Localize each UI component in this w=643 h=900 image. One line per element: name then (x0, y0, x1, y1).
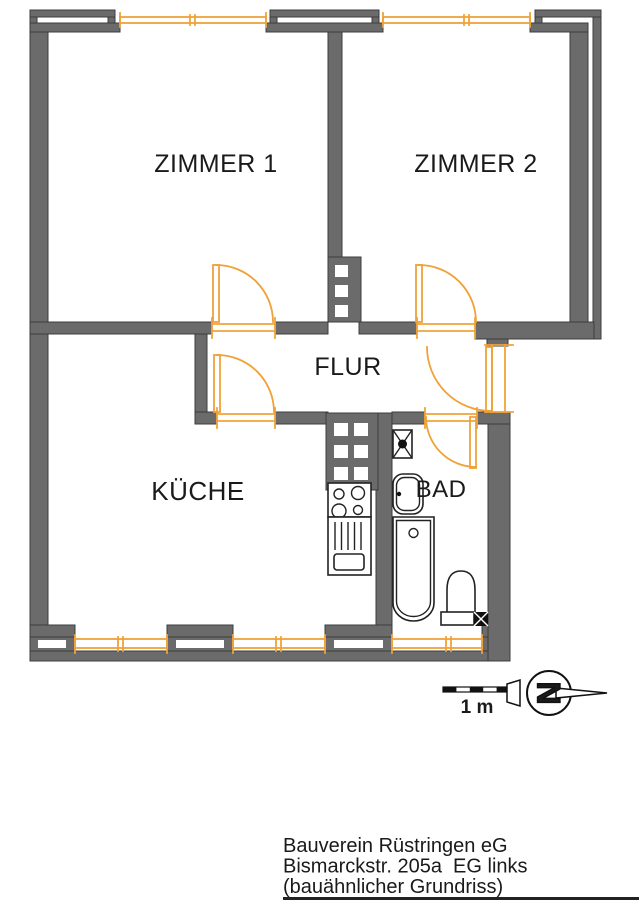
kitchen-sink (328, 517, 371, 575)
room-label-bad: BAD (416, 476, 467, 503)
window-zimmer1-top (120, 13, 266, 27)
window-kueche-left (75, 635, 167, 653)
caption: Bauverein Rüstringen eG Bismarckstr. 205… (283, 835, 528, 898)
drain-box (474, 612, 488, 626)
scale-label: 1 m (461, 697, 494, 718)
door-kueche (214, 355, 275, 428)
north-letter: N (531, 681, 567, 704)
shaft-kitchen (326, 413, 378, 490)
caption-line-3: (bauähnlicher Grundriss) (283, 876, 503, 898)
caption-line-1: Bauverein Rüstringen eG (283, 835, 508, 857)
door-zimmer2 (416, 265, 476, 338)
stove (328, 483, 371, 518)
room-label-zimmer2: ZIMMER 2 (414, 150, 537, 178)
room-label-zimmer1: ZIMMER 1 (154, 150, 277, 178)
window-zimmer2-top (383, 13, 530, 27)
floor-plan: ZIMMER 1 ZIMMER 2 FLUR KÜCHE BAD 1 m N B… (0, 0, 643, 900)
toilet (441, 571, 475, 625)
scale-bar: 1 m (443, 687, 510, 718)
room-label-flur: FLUR (314, 353, 381, 381)
door-bad (425, 408, 477, 468)
caption-line-2: Bismarckstr. 205a EG links (283, 856, 528, 878)
north-arrow-icon: N (507, 671, 607, 715)
bathtub (393, 517, 434, 621)
door-zimmer1 (212, 265, 275, 338)
shaft-upper (328, 257, 361, 322)
floor-plan-page: ZIMMER 1 ZIMMER 2 FLUR KÜCHE BAD 1 m N B… (0, 0, 643, 900)
window-bad (392, 635, 482, 653)
vent-duct (393, 430, 412, 458)
door-entrance (427, 345, 513, 412)
room-label-kueche: KÜCHE (151, 476, 245, 506)
window-kueche-right (233, 635, 325, 653)
